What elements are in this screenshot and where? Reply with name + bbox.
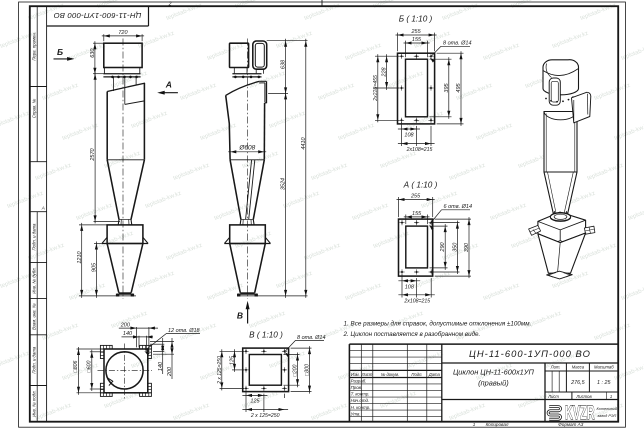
svg-text:6 отв. Ø14: 6 отв. Ø14 xyxy=(444,204,473,210)
svg-text:125: 125 xyxy=(230,355,236,365)
svg-text:Подп. и дата: Подп. и дата xyxy=(32,346,37,374)
svg-text:155: 155 xyxy=(412,37,422,43)
svg-text:(правый): (правый) xyxy=(478,378,509,387)
svg-text:□806: □806 xyxy=(73,360,79,372)
svg-text:1: 1 xyxy=(473,422,476,427)
svg-text:ЦН-11-600-1УП-000 ВО: ЦН-11-600-1УП-000 ВО xyxy=(469,348,591,359)
svg-text:Циклон ЦН-11-600х1УП: Циклон ЦН-11-600х1УП xyxy=(453,367,535,376)
svg-text:Котельный: Котельный xyxy=(596,407,618,411)
svg-text:В ( 1:10 ): В ( 1:10 ) xyxy=(249,331,283,340)
svg-text:Перв. примен.: Перв. примен. xyxy=(32,32,37,61)
svg-text:12 отв. Ø18: 12 отв. Ø18 xyxy=(168,328,201,334)
svg-text:3524: 3524 xyxy=(281,178,287,190)
svg-text:905: 905 xyxy=(91,262,97,272)
svg-text:□300: □300 xyxy=(305,364,311,376)
svg-text:395: 395 xyxy=(444,82,450,92)
svg-text:Т. контр.: Т. контр. xyxy=(351,392,370,397)
svg-text:Ø608: Ø608 xyxy=(238,144,255,151)
svg-text:155: 155 xyxy=(412,211,422,217)
svg-text:8 отв. Ø14: 8 отв. Ø14 xyxy=(297,335,326,341)
svg-text:2x228=455: 2x228=455 xyxy=(373,75,379,102)
svg-text:2: 2 xyxy=(168,1,172,7)
svg-text:255: 255 xyxy=(410,194,421,200)
svg-text:KVZR: KVZR xyxy=(565,403,594,424)
svg-text:Пров.: Пров. xyxy=(351,385,363,390)
svg-text:ЦН-11-600-1УП-000 ВО: ЦН-11-600-1УП-000 ВО xyxy=(54,11,142,20)
svg-text:350: 350 xyxy=(452,242,458,252)
svg-text:Дата: Дата xyxy=(428,372,441,377)
svg-text:200: 200 xyxy=(167,366,173,377)
svg-text:Б ( 1:10 ): Б ( 1:10 ) xyxy=(399,15,433,24)
svg-text:Подп.: Подп. xyxy=(411,372,422,377)
svg-text:Взам. инв. №: Взам. инв. № xyxy=(32,303,37,330)
svg-text:Подп. и дата: Подп. и дата xyxy=(32,223,37,251)
svg-text:638: 638 xyxy=(281,59,287,69)
svg-text:255: 255 xyxy=(410,29,421,35)
svg-text:140: 140 xyxy=(123,331,133,337)
svg-text:228: 228 xyxy=(382,66,388,77)
svg-text:108: 108 xyxy=(404,133,414,139)
svg-text:Инв. № подл.: Инв. № подл. xyxy=(32,390,37,417)
svg-text:Б: Б xyxy=(57,47,63,57)
svg-text:Масштаб: Масштаб xyxy=(594,365,614,370)
svg-text:2 x 125=250: 2 x 125=250 xyxy=(217,356,223,385)
svg-text:Справ. №: Справ. № xyxy=(32,98,37,118)
svg-text:Копировал: Копировал xyxy=(486,422,509,427)
svg-text:2 x 125=250: 2 x 125=250 xyxy=(250,413,280,419)
svg-text:140: 140 xyxy=(158,361,164,371)
svg-text:108: 108 xyxy=(405,284,415,290)
svg-text:1. Все размеры для справок: 1. Все размеры для справок, допустимые о… xyxy=(344,320,532,328)
svg-text:Нач.отд.: Нач.отд. xyxy=(351,398,370,403)
svg-text:2. Циклон поставляется в р: 2. Циклон поставляется в разобранном вид… xyxy=(343,330,481,338)
svg-text:Масса: Масса xyxy=(572,365,585,370)
svg-text:Лист: Лист xyxy=(361,372,373,377)
svg-text:А: А xyxy=(165,80,172,90)
svg-text:Изм.: Изм. xyxy=(351,372,360,377)
svg-text:1210: 1210 xyxy=(77,250,83,263)
svg-text:□200: □200 xyxy=(293,364,299,376)
svg-text:276,5: 276,5 xyxy=(570,380,585,386)
svg-text:720: 720 xyxy=(118,30,128,36)
svg-text:2x108=215: 2x108=215 xyxy=(403,298,430,304)
svg-text:1: 1 xyxy=(610,394,612,399)
svg-text:495: 495 xyxy=(456,82,462,92)
svg-text:завод РЭП: завод РЭП xyxy=(596,414,616,418)
svg-text:200: 200 xyxy=(120,322,131,328)
svg-text:□600: □600 xyxy=(86,360,92,372)
svg-text:290: 290 xyxy=(440,241,446,252)
svg-text:№ докум.: № докум. xyxy=(381,372,399,377)
svg-text:Разраб.: Разраб. xyxy=(351,379,367,384)
svg-text:1 : 25: 1 : 25 xyxy=(597,380,611,386)
svg-text:125: 125 xyxy=(250,399,260,405)
svg-text:4410: 4410 xyxy=(301,136,307,149)
svg-text:8 отв. Ø14: 8 отв. Ø14 xyxy=(443,41,472,47)
svg-text:Утв.: Утв. xyxy=(351,411,361,416)
svg-text:630: 630 xyxy=(90,48,96,58)
svg-text:Н. контр.: Н. контр. xyxy=(351,405,371,410)
svg-text:Лист: Лист xyxy=(547,394,559,399)
svg-text:В: В xyxy=(237,311,243,321)
svg-text:2x108=215: 2x108=215 xyxy=(406,147,433,153)
svg-text:Лит.: Лит. xyxy=(550,365,561,370)
svg-text:Листов: Листов xyxy=(575,394,592,399)
svg-text:А ( 1:10 ): А ( 1:10 ) xyxy=(403,180,438,189)
svg-text:390: 390 xyxy=(464,242,470,252)
svg-text:Инв. № дубл.: Инв. № дубл. xyxy=(32,267,37,293)
svg-text:2570: 2570 xyxy=(90,147,96,161)
svg-text:А: А xyxy=(41,206,45,211)
